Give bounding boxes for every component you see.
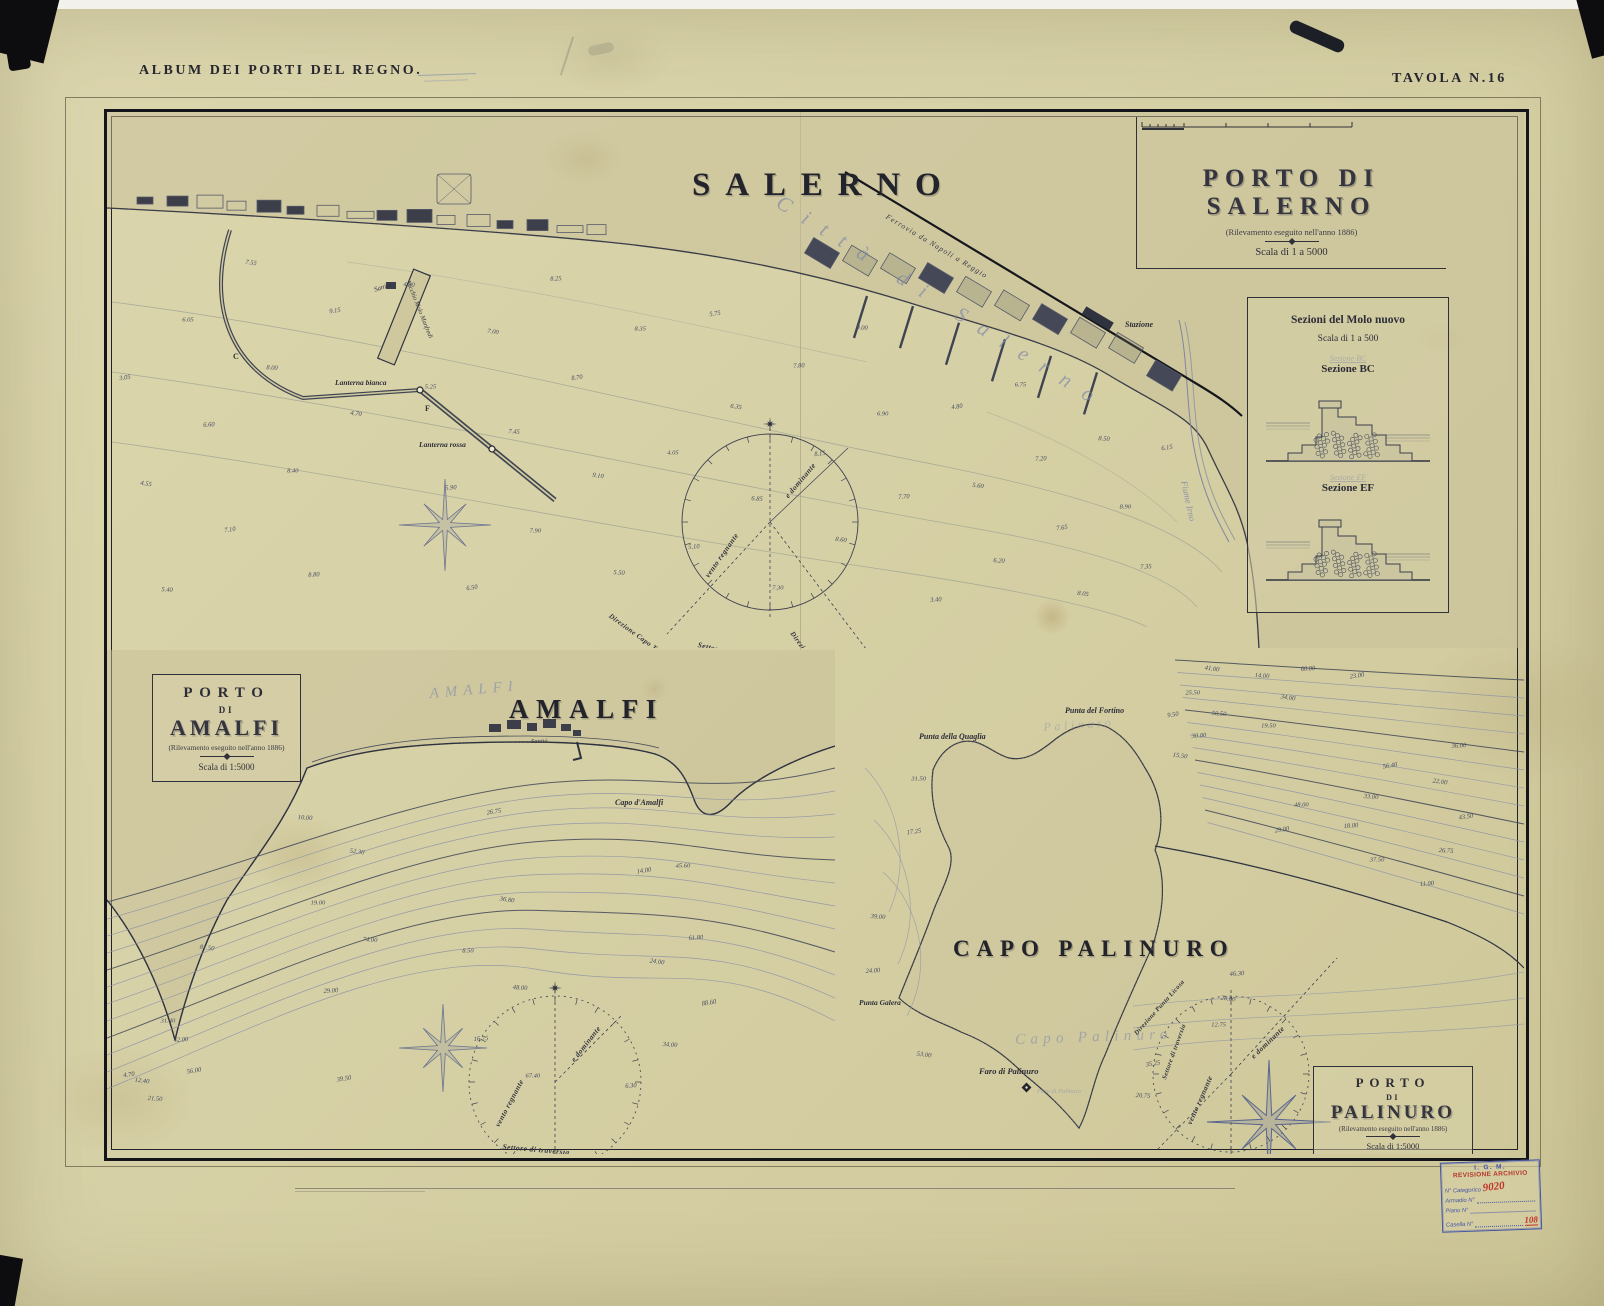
- sounding-value: 34.00: [662, 1041, 677, 1049]
- sounding-value: 61.80: [688, 934, 703, 942]
- sounding-value: 74.00: [362, 936, 377, 944]
- stamp-piano-label: Piano N°: [1445, 1208, 1468, 1215]
- stamp-casella-value: 108: [1524, 1214, 1538, 1225]
- sounding-value: 6.05: [182, 316, 193, 323]
- sounding-value: 56.40: [1382, 761, 1397, 770]
- sounding-value: 48.00: [1294, 802, 1309, 809]
- scale-label-amalfi: Scala di 1:5000: [153, 762, 300, 772]
- sounding-value: 18.00: [1343, 822, 1358, 830]
- stamp-blank-line: [1470, 1204, 1535, 1213]
- stamp-armadio-row: Armadio N°: [1445, 1194, 1537, 1204]
- sounding-value: 8.00: [266, 364, 278, 372]
- sounding-value: 26.75: [486, 807, 501, 816]
- sounding-value: 53.00: [916, 1051, 931, 1060]
- album-title: ALBUM DEI PORTI DEL REGNO.: [139, 63, 422, 79]
- survey-note-amalfi: (Rilevamento eseguito nell'anno 1886): [153, 743, 300, 752]
- sounding-value: 7.80: [793, 362, 805, 370]
- palinuro-porto-word: PORTO: [1314, 1075, 1472, 1091]
- sounding-value: 12.75: [1211, 1021, 1226, 1028]
- sounding-value: 5.25: [425, 383, 436, 390]
- porto-di-salerno-title: PORTO DI SALERNO: [1137, 165, 1446, 221]
- scale-label-palinuro: Scala di 1:5000: [1314, 1141, 1472, 1151]
- sounding-value: 29.00: [323, 987, 338, 995]
- sounding-value: 7.65: [1056, 524, 1068, 533]
- map-primitive: [1288, 407, 1412, 461]
- stamp-categorico-value: 9020: [1482, 1180, 1505, 1195]
- sounding-value: 8.80: [308, 571, 320, 579]
- sounding-value: 3.40: [931, 596, 943, 604]
- sounding-value: 22.00: [1432, 778, 1447, 787]
- sounding-value: 8.90: [1120, 503, 1131, 510]
- sounding-value: 6.15: [1161, 444, 1173, 453]
- amalfi-name: AMALFI: [153, 715, 300, 741]
- survey-note-salerno: (Rilevamento eseguito nell'anno 1886): [1137, 227, 1446, 237]
- sounding-value: 6.60: [203, 421, 215, 429]
- ornament-divider: [1265, 239, 1319, 245]
- sounding-value: 88.60: [701, 999, 716, 1008]
- stamp-piano-row: Piano N°: [1445, 1204, 1537, 1214]
- sounding-value: 4.70: [123, 1070, 135, 1079]
- palinuro-di-word: DI: [1314, 1093, 1472, 1102]
- sounding-value: 4.80: [951, 403, 963, 412]
- sounding-value: 5.60: [972, 482, 984, 491]
- sounding-value: 8.25: [550, 275, 562, 283]
- sounding-value: 8.50: [1098, 435, 1110, 443]
- sounding-value: 9.00: [856, 324, 868, 332]
- sounding-value: 6.85: [751, 495, 763, 503]
- sounding-value: 3.05: [119, 373, 131, 382]
- sounding-value: 33.00: [1363, 793, 1378, 801]
- sounding-value: 10.00: [297, 814, 312, 822]
- sounding-value: 6.90: [877, 410, 888, 417]
- sounding-value: 8.70: [571, 373, 583, 382]
- archive-stamp: I. G. M. REVISIONE ARCHIVIO N° Categoric…: [1440, 1159, 1542, 1232]
- sounding-value: 52.30: [349, 848, 364, 857]
- sounding-value: 81.50: [199, 943, 214, 952]
- chart-porto-di-amalfi: AMALFI AMALFI Sanità Capo d'Amalfi e dom…: [107, 650, 835, 1154]
- sounding-value: 31.40: [161, 1017, 176, 1024]
- sounding-value: 50.50: [1211, 710, 1226, 718]
- sounding-value: 21.50: [147, 1095, 162, 1103]
- sounding-value: 4.55: [140, 480, 152, 489]
- sounding-value: 19.00: [311, 900, 326, 907]
- sounding-value: 4.70: [350, 410, 362, 419]
- sounding-value: 4.30: [404, 281, 416, 289]
- sounding-value: 7.10: [224, 526, 236, 535]
- sounding-value: 17.25: [906, 828, 921, 837]
- sounding-value: 26.75: [1439, 847, 1454, 855]
- map-primitive: [1319, 401, 1341, 408]
- sounding-value: 24.00: [649, 958, 664, 967]
- sounding-value: 8.05: [1077, 589, 1089, 598]
- title-block-amalfi: PORTO DI AMALFI (Rilevamento eseguito ne…: [152, 674, 301, 782]
- title-block-palinuro: PORTO DI PALINURO (Rilevamento eseguito …: [1313, 1066, 1473, 1154]
- sounding-value: 16.75: [473, 1035, 488, 1043]
- sounding-value: 5.90: [446, 484, 458, 492]
- sounding-value: 45.60: [676, 862, 691, 869]
- chart-porto-di-salerno: SALERNO Città di Salerno Ferrovia da Nap…: [107, 112, 1524, 648]
- stamp-blank-line: [1477, 1194, 1536, 1203]
- sounding-value: 30.00: [1192, 732, 1207, 740]
- sounding-value: 48.00: [512, 984, 527, 992]
- sezioni-panel: Sezioni del Molo nuovo Scala di 1 a 500 …: [1247, 297, 1449, 613]
- sounding-value: 6.75: [1015, 381, 1026, 388]
- sounding-value: 20.75: [1136, 1092, 1151, 1100]
- ornament-divider: [200, 754, 254, 760]
- pencil-note-ef: Sezione EF: [1248, 473, 1448, 482]
- sezione-ef-label: Sezione EF: [1248, 482, 1448, 494]
- sounding-value: 7.55: [245, 259, 257, 268]
- sounding-value: 42.00: [173, 1036, 188, 1044]
- sounding-value: 6.50: [466, 583, 478, 592]
- sounding-value: 8.15: [814, 450, 826, 459]
- sounding-value: 56.00: [186, 1067, 201, 1076]
- sounding-value: 31.50: [911, 775, 926, 782]
- sounding-value: 4.05: [667, 450, 678, 457]
- sounding-value: 41.00: [1205, 665, 1220, 674]
- pencil-rule-line: [295, 1188, 1235, 1189]
- map-primitive: [1319, 520, 1341, 527]
- sounding-value: 9.10: [592, 472, 604, 481]
- sounding-value: 12.40: [134, 1077, 149, 1086]
- sounding-value: 29.00: [1274, 825, 1289, 834]
- amalfi-di-word: DI: [153, 705, 300, 715]
- sounding-value: 8.35: [635, 325, 646, 332]
- sounding-value: 28.00: [1220, 994, 1235, 1003]
- sounding-value: 7.30: [772, 584, 783, 591]
- plate-label: TAVOLA N.16: [1392, 71, 1507, 87]
- map-primitive: [1288, 526, 1412, 580]
- stamp-categorico-label: N° Categorico: [1445, 1187, 1481, 1194]
- pencil-rule-line: [295, 1191, 425, 1192]
- survey-note-palinuro: (Rilevamento eseguito nell'anno 1886): [1314, 1125, 1472, 1133]
- sounding-value: 15.50: [1172, 752, 1187, 761]
- sounding-value: 36.80: [499, 895, 514, 904]
- scanned-chart-sheet: ALBUM DEI PORTI DEL REGNO. TAVOLA N.16: [0, 0, 1604, 1306]
- sounding-value: 39.00: [871, 913, 886, 921]
- pencil-note-bc: Sezione BC: [1248, 354, 1448, 363]
- sezioni-title: Sezioni del Molo nuovo: [1248, 314, 1448, 326]
- sounding-value: 24.00: [866, 967, 881, 975]
- stamp-blank-line: [1475, 1219, 1522, 1228]
- sounding-value: 5.10: [688, 544, 700, 552]
- sounding-value: 7.35: [1140, 563, 1152, 571]
- sounding-value: 43.50: [1458, 812, 1473, 821]
- sounding-value: 19.50: [1261, 722, 1276, 729]
- sounding-value: 25.50: [1185, 690, 1200, 697]
- chart-porto-di-palinuro: CAPO PALINURO Punta della Quaglia Punta …: [837, 650, 1524, 1154]
- sounding-value: 46.30: [1230, 970, 1245, 978]
- stamp-armadio-label: Armadio N°: [1445, 1198, 1475, 1205]
- sounding-value: 6.35: [730, 403, 742, 412]
- sounding-value: 35.25: [1145, 1059, 1160, 1068]
- sounding-value: 36.00: [1452, 742, 1467, 750]
- sounding-value: 67.40: [526, 1072, 541, 1079]
- sounding-value: 7.20: [1035, 455, 1047, 463]
- sounding-value: 5.40: [161, 586, 173, 594]
- sounding-value: 7.70: [898, 493, 910, 501]
- ornament-divider: [1366, 1134, 1420, 1140]
- sounding-value: 6.30: [625, 1082, 637, 1090]
- sounding-value: 11.00: [1419, 880, 1434, 888]
- sounding-value: 7.90: [530, 528, 541, 535]
- scale-bar: [1137, 119, 1357, 133]
- palinuro-name: PALINURO: [1314, 1102, 1472, 1124]
- sounding-value: 14.00: [636, 867, 651, 876]
- sounding-value: 5.50: [613, 569, 625, 577]
- title-block-salerno: PORTO DI SALERNO (Rilevamento eseguito n…: [1136, 117, 1446, 269]
- sounding-value: 9.50: [1167, 710, 1179, 719]
- sounding-value: 7.45: [508, 428, 520, 436]
- sounding-value: 39.50: [336, 1075, 351, 1084]
- sounding-value: 7.00: [487, 328, 499, 337]
- sounding-value: 8.60: [835, 536, 847, 545]
- sounding-value: 6.20: [993, 557, 1005, 565]
- sounding-value: 9.15: [329, 307, 341, 316]
- sounding-value: 14.00: [1254, 672, 1269, 680]
- sezioni-scale-label: Scala di 1 a 500: [1248, 334, 1448, 344]
- stamp-categorico-row: N° Categorico 9020: [1445, 1179, 1537, 1194]
- section-drawing-ef: [1258, 496, 1438, 588]
- sounding-value: 5.75: [709, 310, 721, 319]
- amalfi-porto-word: PORTO: [153, 685, 300, 702]
- sounding-value: 8.40: [287, 468, 298, 475]
- stamp-casella-row: Casella N° 108: [1446, 1214, 1538, 1228]
- sounding-value: 60.00: [1300, 665, 1315, 673]
- sezione-bc-label: Sezione BC: [1248, 363, 1448, 375]
- stamp-casella-label: Casella N°: [1446, 1222, 1474, 1229]
- sounding-value: 8.50: [462, 947, 473, 954]
- sounding-value: 23.00: [1350, 672, 1365, 681]
- sounding-value: 34.00: [1280, 694, 1295, 703]
- scale-label-salerno: Scala di 1 a 5000: [1137, 247, 1446, 258]
- section-drawing-bc: [1258, 377, 1438, 469]
- sounding-value: 37.50: [1370, 856, 1385, 863]
